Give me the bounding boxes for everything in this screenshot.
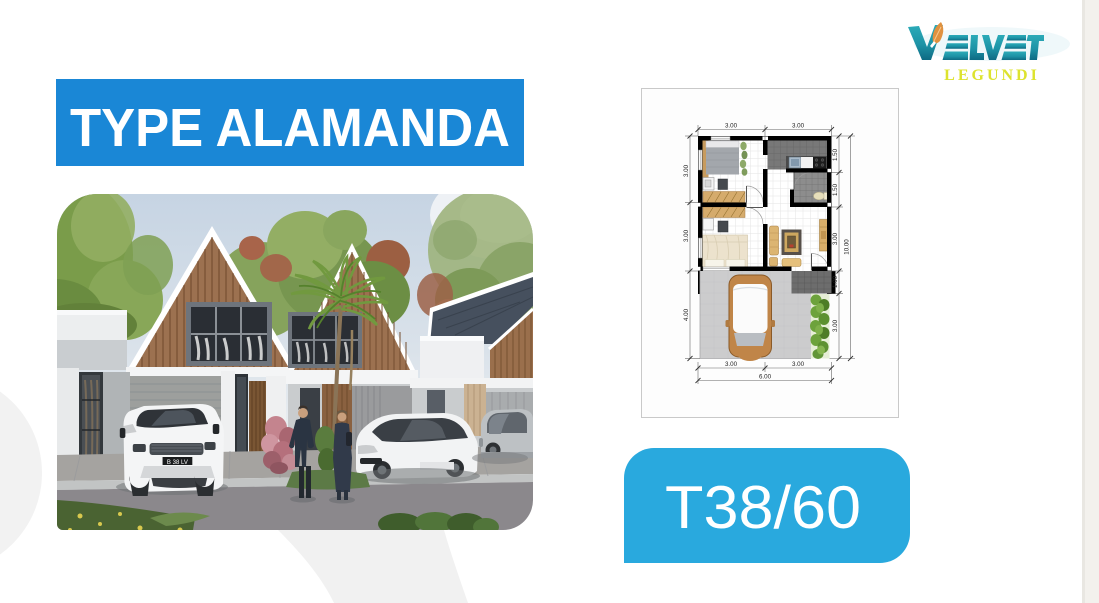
svg-text:TYPE ALAMANDA: TYPE ALAMANDA	[70, 98, 510, 158]
svg-text:3.00: 3.00	[683, 229, 690, 242]
svg-text:1.50: 1.50	[832, 183, 839, 196]
svg-text:10.00: 10.00	[844, 239, 851, 255]
svg-text:6.00: 6.00	[759, 374, 772, 381]
svg-text:1.50: 1.50	[832, 148, 839, 161]
svg-text:T38/60: T38/60	[665, 474, 861, 541]
svg-text:3.00: 3.00	[832, 232, 839, 245]
svg-text:3.00: 3.00	[792, 361, 805, 368]
svg-text:LEGUNDI: LEGUNDI	[944, 67, 1040, 84]
svg-text:3.00: 3.00	[683, 164, 690, 177]
svg-text:4.00: 4.00	[683, 308, 690, 321]
svg-text:3.00: 3.00	[792, 123, 805, 130]
svg-text:1.00: 1.00	[832, 275, 839, 288]
svg-text:3.00: 3.00	[725, 361, 738, 368]
svg-text:3.00: 3.00	[832, 319, 839, 332]
svg-text:3.00: 3.00	[725, 123, 738, 130]
svg-text:B 38 LV: B 38 LV	[167, 459, 189, 466]
